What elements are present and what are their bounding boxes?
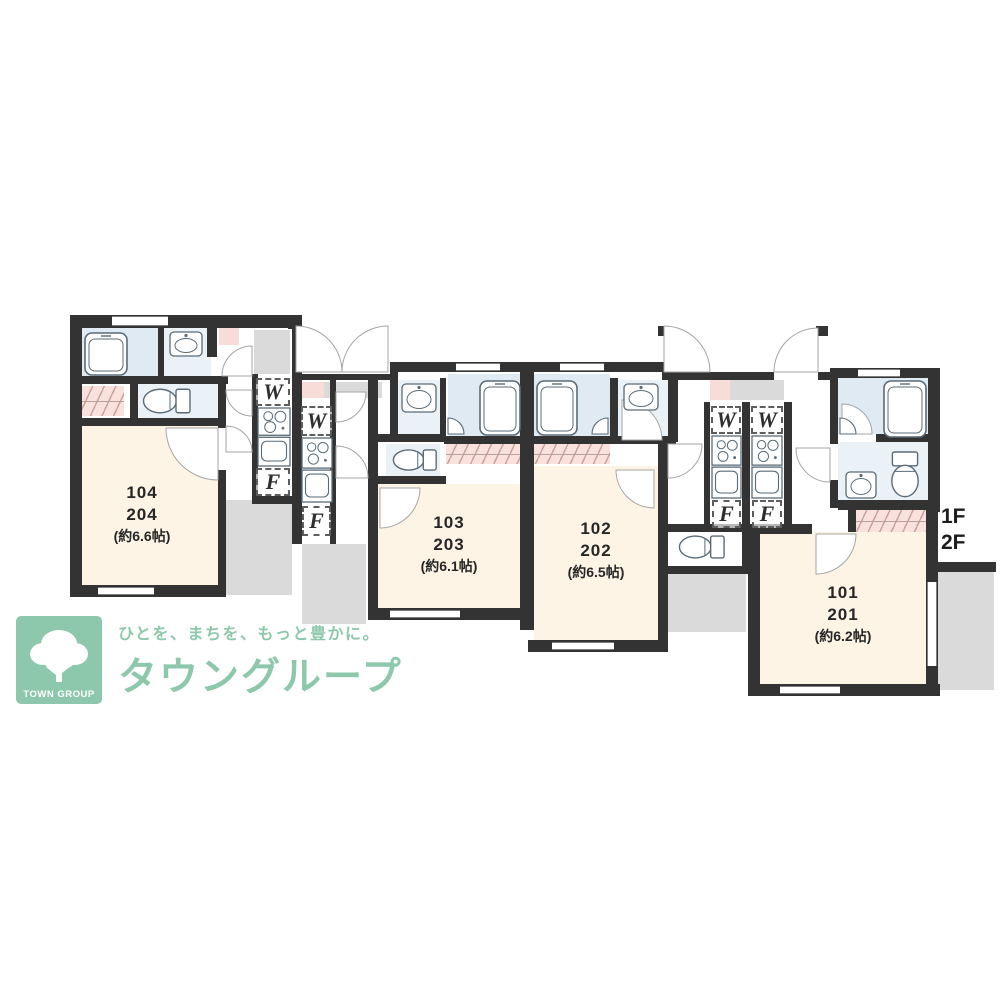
washbasin-icon [846,472,876,498]
washer-label: W [307,408,327,434]
room-number-2f: 201 [776,604,910,626]
washer-label: W [263,379,283,405]
washer-box-unit101: W [751,406,783,434]
fridge-label: F [309,508,324,534]
floor-1f-label: 1F [941,504,966,530]
fridge-label: F [719,501,734,527]
logo-brand: タウングループ [118,646,403,702]
fridge-label: F [266,469,281,495]
fridge-box-unit101: F [752,500,782,528]
floor-2f-label: 2F [941,530,966,556]
bathtub-icon [85,333,127,375]
kitchen-sink-stove-icon [258,408,290,466]
logo-text-block: ひとを、まちを、もっと豊かに。 タウングループ [118,616,403,702]
washbasin-icon [402,384,436,412]
room-number-2f: 202 [530,540,662,562]
room-number-2f: 203 [380,534,518,556]
tree-icon: TOWN GROUP [16,616,102,704]
door-swing-icon [664,326,710,372]
bathtub-icon [884,381,926,437]
room-size: (約6.2帖) [776,627,910,645]
floor-plan-page: W F W F W F W F 104 204 (約6.6帖) 103 203 … [0,0,1000,999]
fridge-box-unit103: F [302,506,331,536]
room-number-1f: 103 [380,512,518,534]
bathtub-icon [480,381,520,435]
room-number-1f: 102 [530,518,662,540]
kitchen-sink-stove-icon [712,436,741,498]
logo-tagline: ひとを、まちを、もっと豊かに。 [118,620,403,644]
fridge-label: F [760,501,775,527]
door-swing-icon [336,446,368,478]
town-group-badge: TOWN GROUP [16,616,102,704]
door-swing-icon [296,326,342,372]
washer-label: W [716,407,736,433]
room-label-103-203: 103 203 (約6.1帖) [380,512,518,575]
corner-basin-icon [448,418,464,434]
washer-box-unit103: W [301,406,332,436]
door-swing-icon [226,426,252,452]
washer-box-unit104: W [256,378,290,406]
door-swing-icon [774,328,818,372]
toilet-icon [393,450,436,470]
door-swing-icon [222,346,252,376]
door-swing-icon [668,444,702,478]
door-swing-icon [342,326,388,372]
room-size: (約6.5帖) [530,563,662,581]
fridge-box-unit104: F [256,468,290,496]
corner-basin-icon [592,418,608,434]
door-swing-icon [336,392,366,422]
washer-label: W [757,407,777,433]
town-group-logo: TOWN GROUP ひとを、まちを、もっと豊かに。 タウングループ [16,616,403,704]
washbasin-icon [624,384,658,410]
toilet-icon [892,452,918,497]
door-swing-icon [166,428,218,480]
floor-indicator: 1F 2F [941,504,966,557]
toilet-icon [144,389,191,413]
fridge-box-unit102: F [712,500,741,528]
room-number-2f: 204 [72,504,212,526]
door-swing-icon [816,534,856,574]
toilet-icon [679,536,724,558]
washbasin-icon [170,332,202,356]
room-label-102-202: 102 202 (約6.5帖) [530,518,662,581]
kitchen-sink-stove-icon [752,436,782,498]
kitchen-sink-stove-icon [302,438,332,502]
room-number-1f: 101 [776,582,910,604]
door-swing-icon [796,448,830,482]
door-swing-icon [616,470,654,508]
door-swing-icon [226,390,252,416]
badge-text-svg: TOWN GROUP [23,689,94,700]
bathtub-icon [537,381,577,435]
washer-box-unit102: W [711,406,741,434]
room-label-101-201: 101 201 (約6.2帖) [776,582,910,645]
room-number-1f: 104 [72,482,212,504]
room-label-104-204: 104 204 (約6.6帖) [72,482,212,545]
room-size: (約6.1帖) [380,557,518,575]
room-size: (約6.6帖) [72,527,212,545]
